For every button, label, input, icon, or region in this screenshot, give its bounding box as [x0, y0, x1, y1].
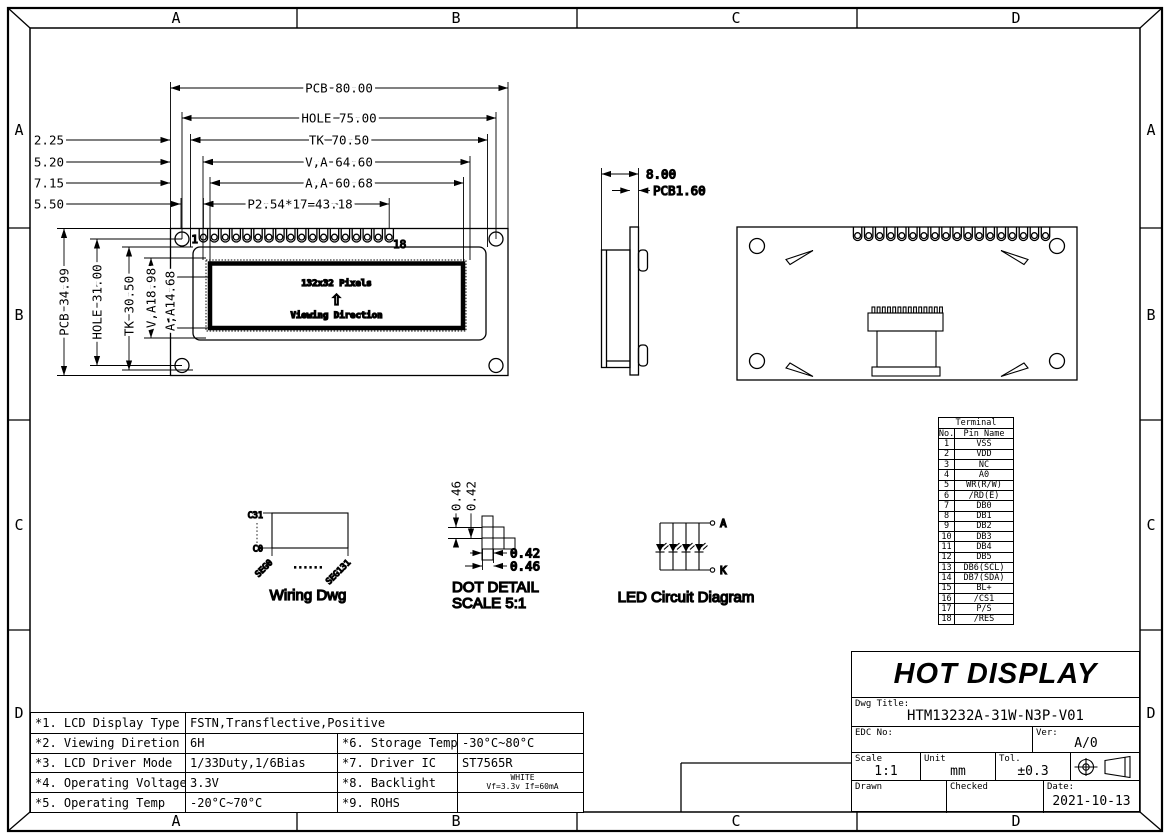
- grid-col-bottom-a: A: [167, 812, 185, 830]
- drawing-sheet: PCB 80.00 HOLE 75.00 TK 70.50 V,A 64.60 …: [0, 0, 1170, 839]
- wiring-seg-last: SEG131: [324, 558, 353, 587]
- drawn-cell: Drawn: [852, 781, 947, 813]
- grid-row-left-c: C: [10, 516, 28, 534]
- tol-cell: Tol. ±0.3: [996, 753, 1071, 780]
- spec-value: -30°C~80°C: [457, 733, 583, 753]
- grid-row-right-d: D: [1142, 704, 1160, 722]
- terminal-row: 2VDD: [939, 450, 1013, 460]
- terminal-row: 15BL+: [939, 584, 1013, 594]
- dim-side-width: 8.00: [646, 167, 676, 182]
- terminal-row: 5WR(R/W): [939, 481, 1013, 491]
- dim-va-height: V,A18.98: [144, 268, 159, 328]
- dim-aa-height: A,A14.68: [163, 271, 178, 331]
- company-name: HOT DISPLAY: [852, 652, 1139, 696]
- scale-label: Scale: [855, 754, 882, 764]
- spec-label: *9. ROHS: [337, 792, 457, 812]
- spec-value: ST7565R: [457, 753, 583, 773]
- spec-value-backlight: WHITE Vf=3.3v If=60mA: [457, 772, 583, 792]
- title-block-edc-row: EDC No: Ver: A/0: [852, 727, 1139, 753]
- spec-label: *1. LCD Display Type: [31, 713, 185, 733]
- checked-label: Checked: [950, 782, 988, 792]
- dim-offset-1: 2.25: [34, 133, 64, 148]
- dim-pcb-height: PCB 34.99: [57, 268, 72, 336]
- dot-detail: [448, 509, 515, 570]
- terminal-table: Terminal No. Pin Name 1VSS2VDD3NC4A05WR(…: [938, 417, 1014, 625]
- terminal-row: 12DB5: [939, 553, 1013, 563]
- dot-dim-col-inner: 0.42: [464, 481, 479, 511]
- scale-cell: Scale 1:1: [852, 753, 921, 780]
- terminal-row: 17P/S: [939, 604, 1013, 614]
- dim-hole-width: HOLE 75.00: [301, 111, 376, 126]
- side-view: [602, 168, 651, 375]
- spec-label: *3. LCD Driver Mode: [31, 753, 185, 773]
- title-block-scale-row: Scale 1:1 Unit mm Tol. ±0.3: [852, 753, 1139, 781]
- backlight-rating: Vf=3.3v If=60mA: [486, 783, 558, 792]
- spec-label: *2. Viewing Diretion: [31, 733, 185, 753]
- led-anode-label: A: [720, 517, 727, 530]
- terminal-row: 7DB0: [939, 501, 1013, 511]
- grid-col-bottom-c: C: [727, 812, 745, 830]
- dot-detail-scale: SCALE 5:1: [452, 595, 526, 612]
- spec-value: [457, 792, 583, 812]
- led-circuit-caption: LED Circuit Diagram: [618, 589, 755, 606]
- pin-1-label: 1: [191, 233, 198, 246]
- terminal-table-header: No. Pin Name: [939, 429, 1013, 439]
- grid-row-left-d: D: [10, 704, 28, 722]
- wiring-caption: Wiring Dwg: [270, 587, 347, 604]
- date-cell: Date: 2021-10-13: [1044, 781, 1139, 813]
- title-block-company-row: HOT DISPLAY: [852, 652, 1139, 698]
- dim-pcb-width: PCB 80.00: [305, 81, 373, 96]
- terminal-row: 10DB3: [939, 532, 1013, 542]
- pin-18-label: 18: [393, 238, 406, 251]
- date-label: Date:: [1047, 782, 1074, 792]
- terminal-row: 13DB6(SCL): [939, 563, 1013, 573]
- grid-col-top-c: C: [727, 9, 745, 27]
- dim-pin-pitch: P2.54*17=43.18: [247, 197, 352, 212]
- terminal-row: 18/RES: [939, 615, 1013, 624]
- spec-label: *4. Operating Voltage: [31, 772, 185, 792]
- dot-dim-row-outer: 0.46: [510, 559, 540, 574]
- terminal-col-no: No.: [939, 429, 955, 438]
- dim-aa-width: A,A 60.68: [305, 176, 373, 191]
- back-view: [737, 227, 1077, 380]
- dwg-title-label: Dwg Title:: [855, 699, 909, 709]
- grid-row-left-b: B: [10, 306, 28, 324]
- spec-label: *5. Operating Temp: [31, 792, 185, 812]
- terminal-row: 9DB2: [939, 522, 1013, 532]
- viewing-direction-label: Viewing Direction: [290, 310, 382, 321]
- unit-label: Unit: [924, 754, 946, 764]
- led-circuit: [656, 521, 715, 572]
- drawn-label: Drawn: [855, 782, 882, 792]
- grid-col-bottom-b: B: [447, 812, 465, 830]
- edc-cell: EDC No:: [852, 727, 1033, 752]
- dim-offset-4: 5.50: [34, 197, 64, 212]
- terminal-row: 6/RD(E): [939, 491, 1013, 501]
- spec-value: -20°C~70°C: [185, 792, 337, 812]
- wiring-com-top: C31: [248, 511, 263, 521]
- wiring-dwg: [257, 513, 348, 556]
- title-block-dwg-row: Dwg Title: HTM13232A-31W-N3P-V01: [852, 698, 1139, 727]
- terminal-col-pin-name: Pin Name: [955, 429, 1013, 439]
- wiring-seg-first: SEG0: [254, 558, 276, 580]
- spec-label: *6. Storage Temp: [337, 733, 457, 753]
- terminal-table-title: Terminal: [939, 418, 1013, 429]
- grid-col-top-d: D: [1007, 9, 1025, 27]
- dim-va-width: V,A 64.60: [305, 155, 373, 170]
- grid-col-top-b: B: [447, 9, 465, 27]
- ver-cell: Ver: A/0: [1033, 727, 1139, 752]
- spec-value: 6H: [185, 733, 337, 753]
- spec-value: 1/33Duty,1/6Bias: [185, 753, 337, 773]
- dim-hole-height: HOLE 31.00: [90, 264, 105, 339]
- wiring-seg-dots: ......: [293, 561, 324, 571]
- lcd-pixels-label: 132x32 Pixels: [301, 278, 371, 289]
- wiring-com-bottom: C0: [253, 545, 263, 555]
- terminal-row: 3NC: [939, 460, 1013, 470]
- led-cathode-label: K: [720, 564, 727, 577]
- grid-row-left-a: A: [10, 121, 28, 139]
- viewing-direction-arrow-icon: ⇧: [330, 291, 343, 309]
- tol-label: Tol.: [999, 754, 1021, 764]
- dim-tk-height: TK 30.50: [122, 276, 137, 336]
- checked-cell: Checked: [947, 781, 1044, 813]
- grid-col-bottom-d: D: [1007, 812, 1025, 830]
- grid-row-right-c: C: [1142, 516, 1160, 534]
- edc-label: EDC No:: [855, 728, 893, 738]
- spec-table: *1. LCD Display Type FSTN,Transflective,…: [30, 712, 584, 813]
- backlight-connector: [868, 307, 943, 376]
- dim-tk-width: TK 70.50: [309, 133, 369, 148]
- terminal-row: 14DB7(SDA): [939, 573, 1013, 583]
- grid-col-top-a: A: [167, 9, 185, 27]
- projection-symbol-cell: [1071, 753, 1139, 780]
- spec-value: 3.3V: [185, 772, 337, 792]
- unit-cell: Unit mm: [921, 753, 996, 780]
- grid-row-right-a: A: [1142, 121, 1160, 139]
- spec-value: FSTN,Transflective,Positive: [185, 713, 583, 733]
- spec-label: *7. Driver IC: [337, 753, 457, 773]
- dim-offset-2: 5.20: [34, 155, 64, 170]
- third-angle-projection-icon: [1072, 754, 1138, 780]
- dim-pcb-thickness: PCB1.60: [653, 183, 706, 198]
- terminal-row: 11DB4: [939, 542, 1013, 552]
- title-block-sign-row: Drawn Checked Date: 2021-10-13: [852, 781, 1139, 813]
- ver-label: Ver:: [1036, 728, 1058, 738]
- dot-dim-col-outer: 0.46: [449, 481, 464, 511]
- title-block: HOT DISPLAY Dwg Title: HTM13232A-31W-N3P…: [851, 651, 1140, 812]
- dot-detail-caption: DOT DETAIL: [452, 579, 539, 596]
- terminal-row: 8DB1: [939, 512, 1013, 522]
- dim-offset-3: 7.15: [34, 176, 64, 191]
- terminal-row: 16/CS1: [939, 594, 1013, 604]
- grid-row-right-b: B: [1142, 306, 1160, 324]
- spec-label: *8. Backlight: [337, 772, 457, 792]
- terminal-row: 4A0: [939, 470, 1013, 480]
- terminal-row: 1VSS: [939, 439, 1013, 449]
